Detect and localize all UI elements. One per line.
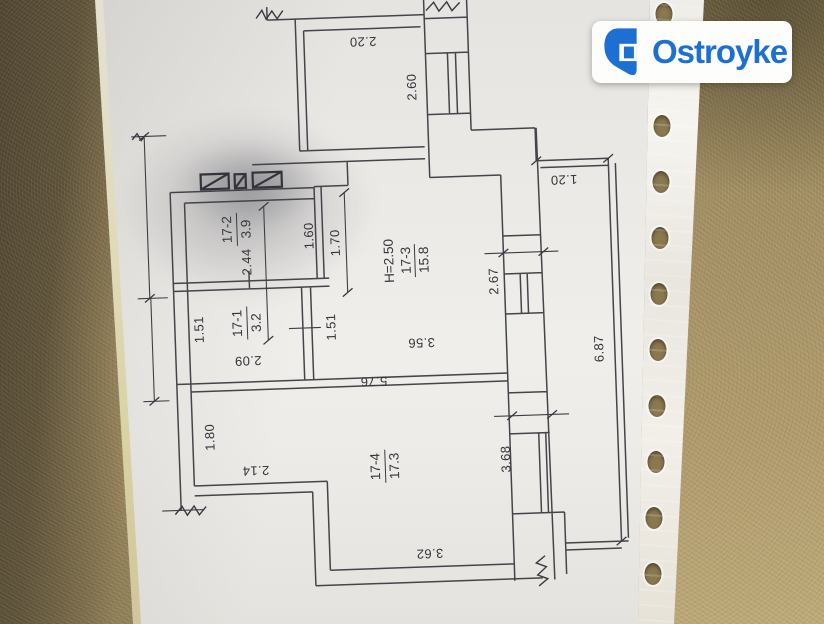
punch-hole <box>651 283 668 305</box>
dimension-label-2-60: 2.60 <box>404 73 420 100</box>
dimension-label-6-87: 6.87 <box>591 335 607 362</box>
dimension-label-3-62: 3.62 <box>416 546 443 562</box>
room-label-17-1: 17-1 3.2 <box>229 306 264 340</box>
dimension-label-2-20: 2.20 <box>349 34 376 50</box>
punch-hole <box>648 451 665 473</box>
punch-hole <box>654 115 671 137</box>
photo-smudge <box>175 140 325 230</box>
room-label-17-3: H=2.50 17-3 15.8 <box>381 238 433 284</box>
brand-name: Ostroyke <box>652 33 787 71</box>
dimension-label-1-80: 1.80 <box>202 424 218 451</box>
punch-hole <box>646 507 663 529</box>
dimension-label-5-76: 5.76 <box>360 374 387 390</box>
room-area: 3.2 <box>247 313 264 332</box>
room-number: 17-3 <box>397 244 416 278</box>
ostroyke-logo-icon <box>603 26 643 78</box>
punch-hole <box>645 563 662 585</box>
dimension-label-1-51-left: 1.51 <box>191 316 207 343</box>
dimension-label-3-56: 3.56 <box>408 335 435 351</box>
punch-hole <box>652 227 669 249</box>
room-area: 15.8 <box>415 246 432 273</box>
dimension-label-1-20: 1.20 <box>550 172 577 188</box>
dimension-label-2-09: 2.09 <box>234 353 261 369</box>
room-area: 17.3 <box>385 453 402 480</box>
dimension-label-2-14: 2.14 <box>242 463 269 479</box>
room-number: 17-1 <box>229 306 248 340</box>
punch-hole <box>649 395 666 417</box>
dimension-label-1-51-right: 1.51 <box>323 313 339 340</box>
punch-hole <box>653 171 670 193</box>
ostroyke-watermark: Ostroyke <box>592 21 792 83</box>
photo-scene: 17-2 3.9 17-1 3.2 H=2.50 17-3 15.8 17-4 … <box>0 0 824 624</box>
dimension-label-2-67: 2.67 <box>485 268 501 295</box>
ceiling-height: H=2.50 <box>381 239 399 283</box>
room-number: 17-4 <box>367 450 386 484</box>
dimension-label-3-68: 3.68 <box>498 445 514 472</box>
punch-hole <box>650 339 667 361</box>
room-label-17-4: 17-4 17.3 <box>367 449 402 483</box>
